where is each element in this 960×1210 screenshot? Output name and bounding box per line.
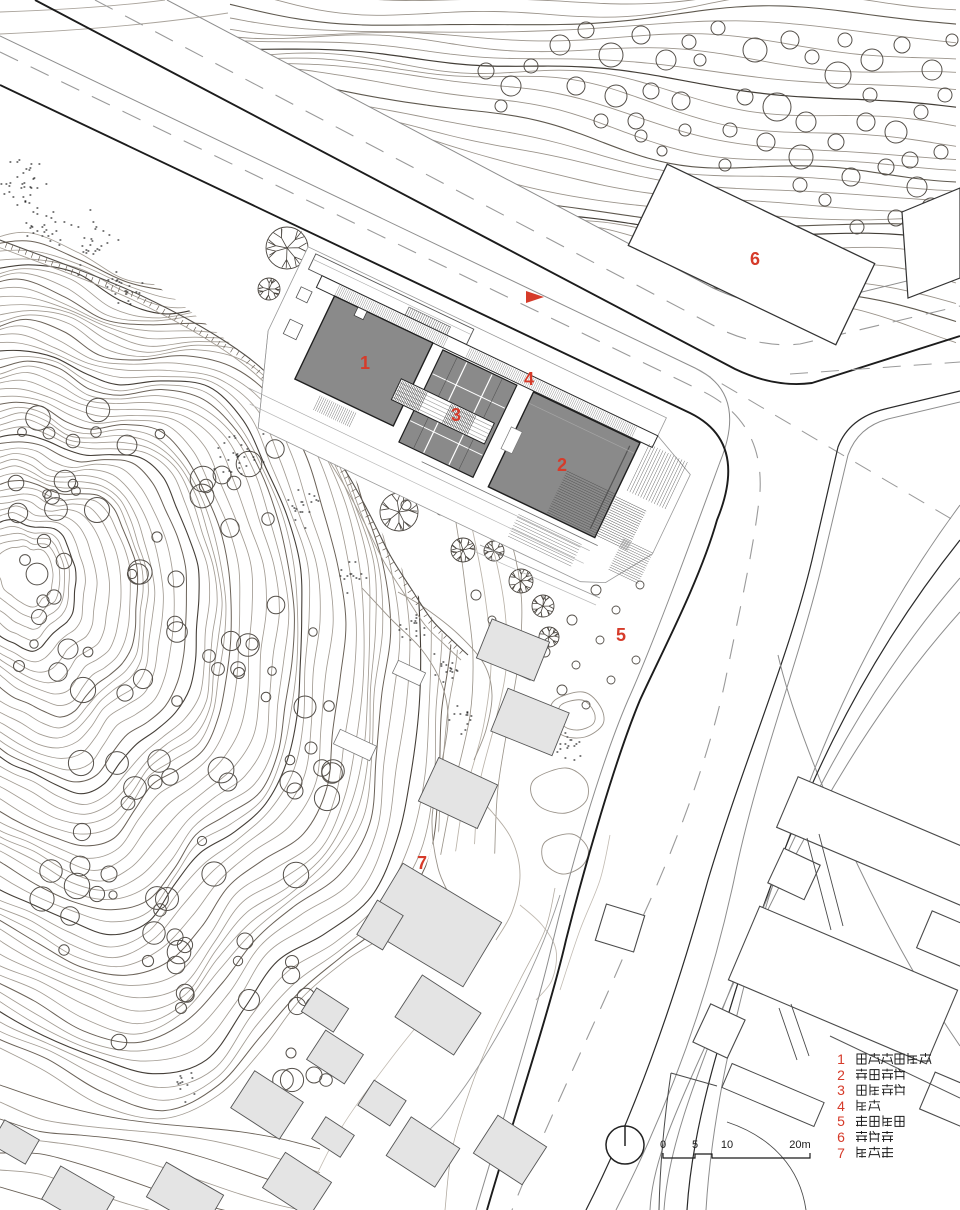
svg-text:3: 3 (451, 405, 461, 425)
svg-text:5: 5 (616, 625, 626, 645)
svg-text:6: 6 (750, 249, 760, 269)
svg-text:1: 1 (360, 353, 370, 373)
svg-text:7: 7 (837, 1145, 845, 1161)
svg-text:4: 4 (524, 369, 534, 389)
svg-text:6: 6 (837, 1129, 845, 1145)
svg-text:2: 2 (557, 455, 567, 475)
svg-text:20m: 20m (789, 1139, 810, 1151)
svg-text:2: 2 (837, 1067, 845, 1083)
svg-text:4: 4 (837, 1098, 845, 1114)
svg-text:0: 0 (660, 1139, 666, 1151)
svg-text:10: 10 (721, 1139, 733, 1151)
svg-text:5: 5 (837, 1113, 845, 1129)
svg-text:5: 5 (692, 1139, 698, 1151)
svg-text:1: 1 (837, 1051, 845, 1067)
svg-text:3: 3 (837, 1082, 845, 1098)
svg-text:7: 7 (417, 853, 427, 873)
